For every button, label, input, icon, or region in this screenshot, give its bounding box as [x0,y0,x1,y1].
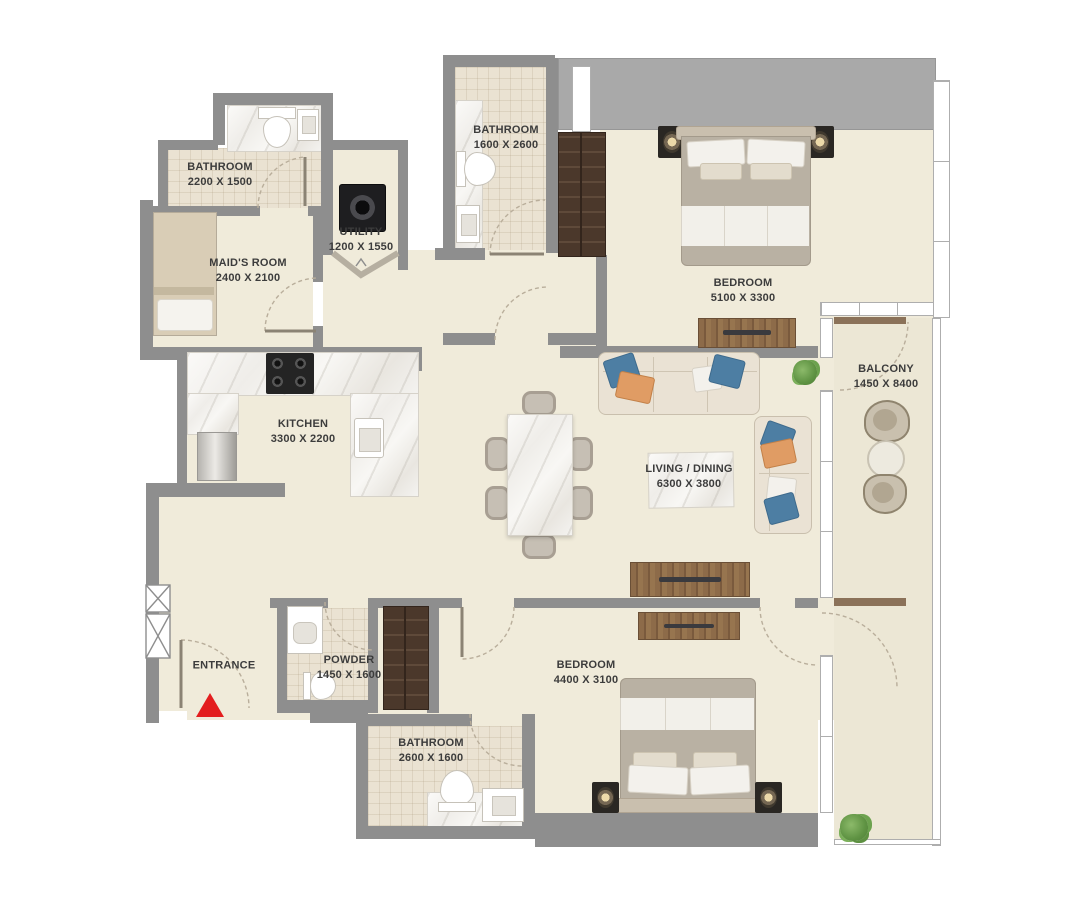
bedroom-master-south-window [820,302,934,316]
room-label-bedroom-second: BEDROOM 4400 X 3100 [554,658,619,688]
bedroom-second-south-band [535,813,818,847]
balcony-partition-mid [834,598,906,606]
nightstand [592,782,619,813]
burner [295,376,306,387]
wall [546,58,558,253]
sheet [620,698,754,730]
room-dims: 2600 X 1600 [398,751,464,766]
tv [723,330,771,335]
maids-bed [153,212,217,336]
balcony-chair [863,474,907,514]
chair-seat [488,489,507,517]
toilet-tank [438,802,476,812]
master-bed [676,126,814,266]
tv [659,577,721,582]
room-name: BATHROOM [398,736,464,751]
tv-console-master [698,318,796,348]
chair-seat [571,489,590,517]
wall [146,483,285,497]
room-label-powder: POWDER 1450 X 1600 [317,653,382,683]
room-label-bathroom-top: BATHROOM 1600 X 2600 [473,123,539,153]
powder-sink-basin [293,622,317,644]
room-label-living-dining: LIVING / DINING 6300 X 3800 [645,462,732,492]
room-label-bathroom-bottom: BATHROOM 2600 X 1600 [398,736,464,766]
wall [356,826,535,839]
burner [272,358,283,369]
room-dims: 1450 X 1600 [317,668,382,683]
balcony-left-window-b [820,390,833,598]
bed-pillow [689,764,750,795]
chair-seat [873,409,897,431]
burner [295,358,306,369]
kitchen-counter-left [187,393,239,435]
plant [840,814,868,841]
room-label-entrance: ENTRANCE [193,659,256,674]
wardrobe-seam [580,133,582,256]
wall [177,357,187,485]
toilet-bowl [440,770,474,806]
room-name: ENTRANCE [193,659,256,674]
room-name: POWDER [317,653,382,668]
entrance-floor [159,483,189,711]
sofa-seam [759,473,809,474]
wall [213,93,333,105]
wall [795,598,818,608]
room-name: BATHROOM [473,123,539,138]
room-label-bedroom-master: BEDROOM 5100 X 3300 [711,276,776,306]
wall [158,140,168,210]
room-dims: 2400 X 2100 [209,271,287,286]
maids-bed-pillow [157,299,213,331]
room-dims: 2200 X 1500 [187,175,253,190]
kitchen-sink-basin [359,428,381,452]
dining-table [507,414,573,536]
wardrobe-master [558,132,606,257]
sink-basin [302,116,316,134]
lamp [597,787,614,808]
dining-chair [522,391,556,416]
wall [398,140,408,270]
washer-door [350,195,375,220]
tv [664,624,714,628]
burner [272,376,283,387]
chair-seat [525,537,553,556]
plant [793,360,817,385]
bed-cushion [700,163,742,180]
chair-seat [571,440,590,468]
wall [356,714,472,726]
maids-bed-fold [154,287,214,295]
room-name: KITCHEN [271,417,336,432]
room-name: MAID'S ROOM [209,256,287,271]
chair-seat [488,440,507,468]
room-dims: 4400 X 3100 [554,673,619,688]
wall [321,93,333,215]
fridge [197,432,237,481]
wall [443,58,455,255]
wall [356,714,368,839]
wall [435,248,485,260]
wall [140,200,153,348]
wall [443,333,495,345]
nightstand [755,782,782,813]
wall [548,333,607,345]
headboard [614,798,762,813]
room-name: BATHROOM [187,160,253,175]
shaft-notch [572,66,591,132]
room-name: BEDROOM [711,276,776,291]
bedroom-master-right-window [933,80,950,318]
room-label-bathroom-tl: BATHROOM 2200 X 1500 [187,160,253,190]
balcony-chair [864,400,910,442]
wall [146,483,159,723]
wardrobe-second [383,606,429,710]
room-name: BEDROOM [554,658,619,673]
floor-plan: BATHROOM 2200 X 1500 MAID'S ROOM 2400 X … [0,0,1080,904]
wall [514,598,760,608]
balcony-floor [834,318,934,842]
cooktop [266,353,314,394]
room-label-maids-room: MAID'S ROOM 2400 X 2100 [209,256,287,286]
room-name: UTILITY [329,225,394,240]
wardrobe-seam [404,607,406,709]
bed-pillow [627,764,688,795]
bed-cushion [750,163,792,180]
sink-basin [461,214,477,236]
balcony-table [867,440,905,478]
chair-seat [525,394,553,413]
sink-basin [492,796,516,816]
lamp [760,787,777,808]
room-label-balcony: BALCONY 1450 X 8400 [854,362,919,392]
room-name: BALCONY [854,362,919,377]
sheet [681,206,809,246]
room-dims: 6300 X 3800 [645,477,732,492]
room-dims: 1600 X 2600 [473,138,539,153]
wall [443,55,555,67]
chair-seat [872,482,894,503]
room-label-kitchen: KITCHEN 3300 X 2200 [271,417,336,447]
balcony-left-window-c [820,655,833,813]
common-wall-block [558,58,936,130]
room-dims: 3300 X 2200 [271,432,336,447]
room-name: LIVING / DINING [645,462,732,477]
room-dims: 1200 X 1550 [329,240,394,255]
entrance-arrow-icon [196,693,224,717]
tv-console-bedroom2 [638,612,740,640]
wall [277,598,287,710]
balcony-partition-top [834,317,906,324]
balcony-left-window-a [820,318,833,358]
tv-console-living [630,562,750,597]
wall [213,93,225,145]
balcony-right-frame [932,318,941,846]
second-bed [614,678,760,811]
dining-chair [522,534,556,559]
wall [333,140,408,150]
wall [277,700,378,713]
room-dims: 5100 X 3300 [711,291,776,306]
room-dims: 1450 X 8400 [854,377,919,392]
room-label-utility: UTILITY 1200 X 1550 [329,225,394,255]
